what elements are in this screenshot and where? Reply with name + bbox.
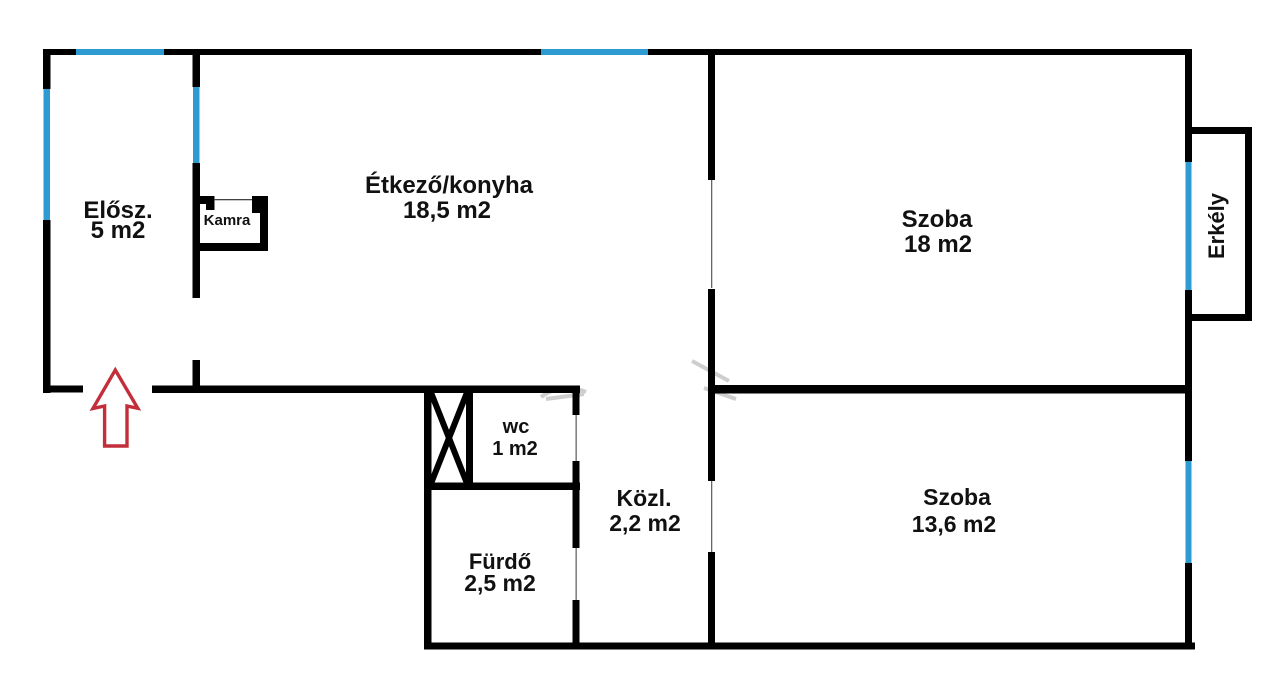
svg-text:Szoba: Szoba	[923, 484, 991, 510]
svg-text:Szoba: Szoba	[902, 206, 973, 233]
svg-text:13,6 m2: 13,6 m2	[912, 511, 996, 537]
svg-text:2,2 m2: 2,2 m2	[609, 510, 681, 536]
svg-text:Közl.: Közl.	[617, 485, 672, 511]
svg-text:Erkély: Erkély	[1204, 192, 1229, 259]
svg-text:18 m2: 18 m2	[904, 231, 972, 258]
svg-text:5 m2: 5 m2	[91, 217, 146, 244]
svg-text:2,5 m2: 2,5 m2	[464, 570, 536, 596]
svg-text:1 m2: 1 m2	[492, 438, 538, 460]
svg-text:wc: wc	[502, 416, 530, 438]
svg-text:18,5 m2: 18,5 m2	[403, 197, 491, 224]
svg-text:Étkező/konyha: Étkező/konyha	[365, 171, 534, 199]
svg-text:Kamra: Kamra	[204, 212, 251, 229]
